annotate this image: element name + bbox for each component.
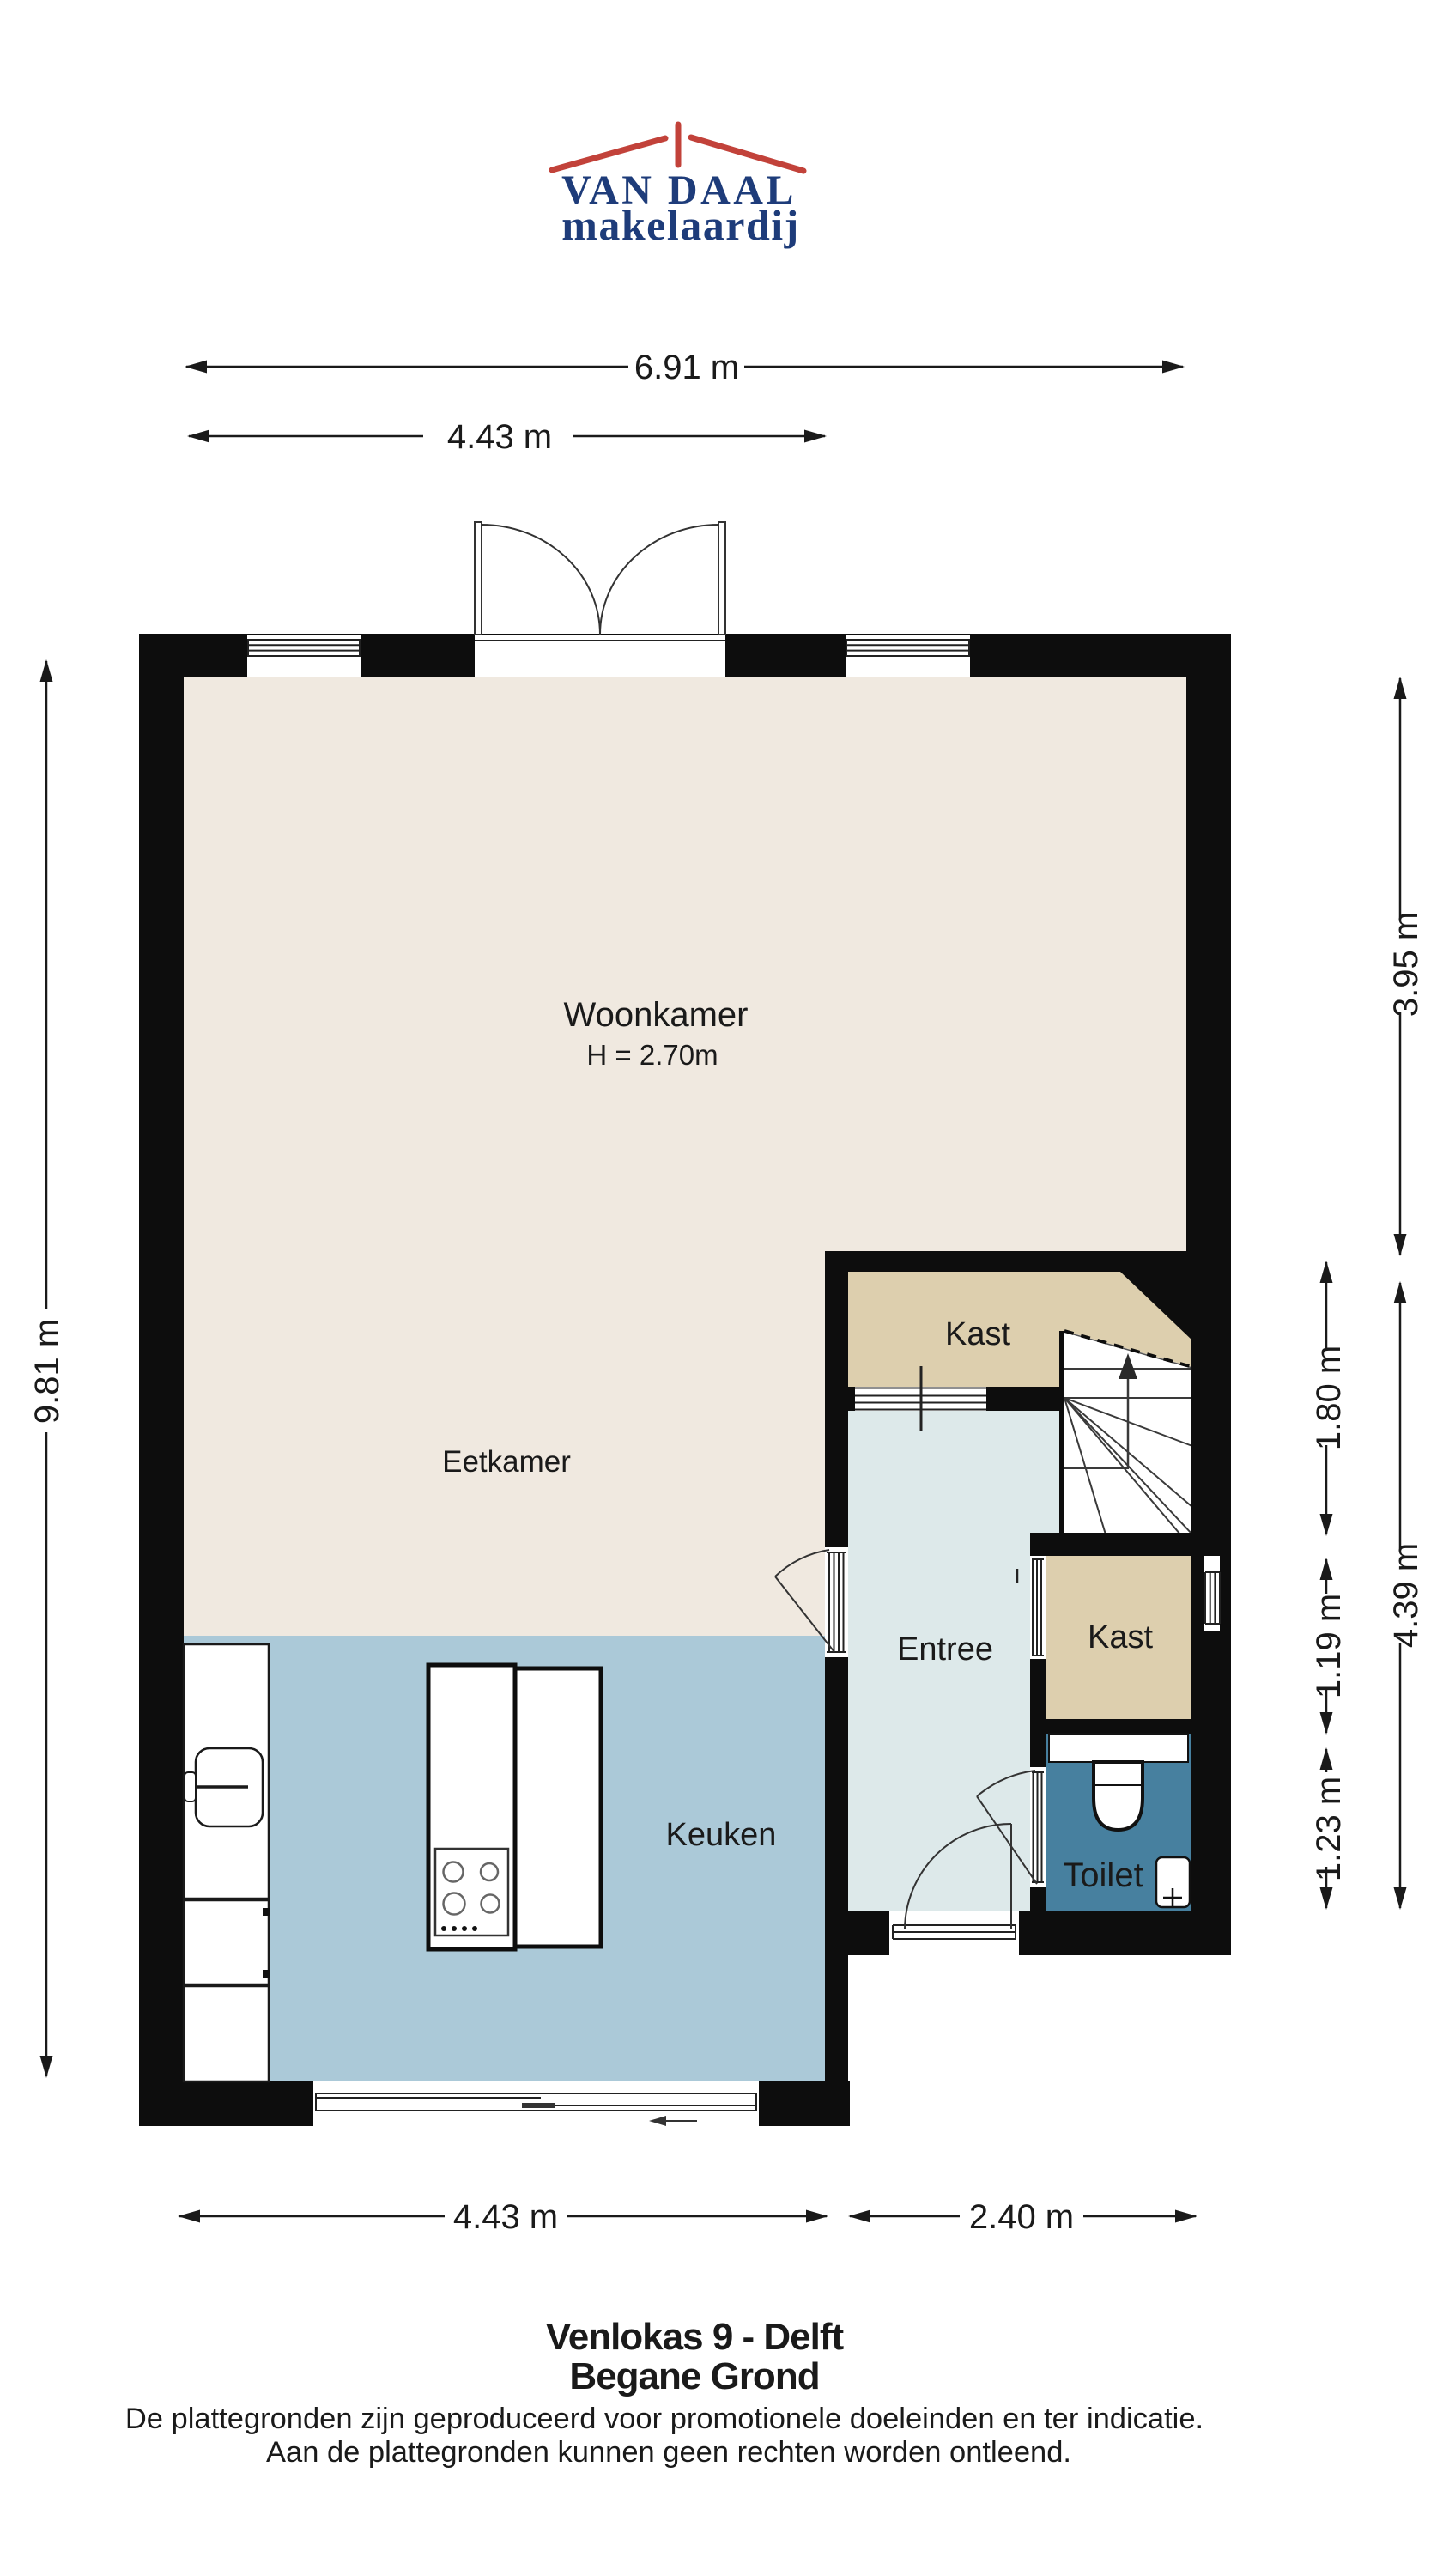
svg-text:Keuken: Keuken: [666, 1817, 777, 1853]
svg-text:Kast: Kast: [945, 1316, 1010, 1352]
svg-text:2.40 m: 2.40 m: [969, 2198, 1074, 2236]
svg-text:4.43 m: 4.43 m: [447, 418, 552, 456]
svg-text:6.91 m: 6.91 m: [634, 349, 739, 386]
svg-text:Venlokas 9 - Delft: Venlokas 9 - Delft: [546, 2316, 845, 2358]
svg-text:3.95 m: 3.95 m: [1387, 912, 1425, 1017]
svg-text:Woonkamer: Woonkamer: [564, 996, 749, 1034]
svg-text:Eetkamer: Eetkamer: [442, 1445, 571, 1479]
svg-text:De plattegronden zijn geproduc: De plattegronden zijn geproduceerd voor …: [125, 2403, 1203, 2435]
svg-text:Toilet: Toilet: [1063, 1856, 1143, 1894]
svg-text:4.39 m: 4.39 m: [1387, 1543, 1425, 1648]
svg-text:Begane Grond: Begane Grond: [569, 2355, 819, 2397]
svg-text:makelaardij: makelaardij: [561, 201, 800, 249]
svg-text:Aan de plattegronden kunnen ge: Aan de plattegronden kunnen geen rechten…: [266, 2436, 1071, 2469]
svg-text:9.81 m: 9.81 m: [28, 1319, 66, 1424]
svg-text:1.23 m: 1.23 m: [1310, 1777, 1348, 1881]
svg-text:1.80 m: 1.80 m: [1310, 1346, 1348, 1450]
svg-text:1.19 m: 1.19 m: [1310, 1594, 1348, 1698]
svg-text:H = 2.70m: H = 2.70m: [586, 1039, 718, 1071]
svg-text:Kast: Kast: [1088, 1619, 1153, 1656]
svg-text:Entree: Entree: [897, 1631, 993, 1668]
svg-text:4.43 m: 4.43 m: [453, 2198, 558, 2236]
